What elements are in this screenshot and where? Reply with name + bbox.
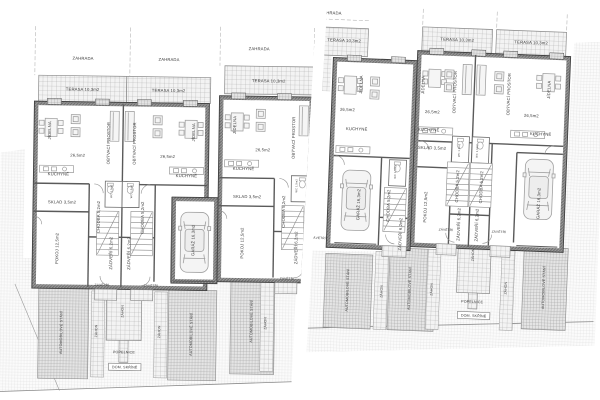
label-stani: AUTOMOBILOVÉ STÁNÍ [248, 300, 254, 343]
label-dom_skrine: DOM. SKŘÍNĚ [112, 364, 138, 369]
label-zahrada: ZAHRADA [72, 56, 93, 61]
label-garaz: GARÁŽ 16,3m2 [190, 224, 195, 256]
sofa-icon [462, 64, 472, 94]
label-zavetri: ZÁVĚTŘÍ [439, 227, 454, 233]
label-wc: WC 1,5m2 [457, 143, 462, 157]
label-zadveri: ZÁDVEŘÍ 6,2m2 [293, 231, 298, 264]
label-wc: WC 1,5m2 [294, 179, 298, 193]
label-zahon: ZÁHON [94, 324, 98, 337]
sofa-icon [476, 65, 486, 95]
label-pokoj: POKOJ 12,5m2 [239, 227, 244, 259]
right-floor-plan: ZAHRADATERASA 10,3m2TERASA 10,3m2TERASA … [293, 4, 600, 397]
label-zahon: ZÁHON [503, 281, 507, 294]
label-area_living: 26,5m2 [340, 107, 356, 113]
label-kuchyne: KUCHYNĚ [233, 166, 255, 171]
label-chodba: CHODBA 5,2m2 [281, 195, 286, 228]
label-jidelna: JÍDELNA [546, 80, 552, 99]
sofa-icon [110, 111, 119, 141]
label-wc: WC 1,5m2 [109, 184, 113, 198]
label-zahon: ZÁHON [429, 283, 433, 296]
label-area_living: 26,5m2 [255, 147, 270, 152]
label-zavetri: ZÁVĚTŘÍ [95, 282, 110, 287]
label-zahon: ZÁHON [263, 317, 267, 330]
left-floor-plan: ZAHRADAZAHRADAZAHRADATERASA 10,3m2TERASA… [11, 18, 326, 394]
kitchen-counter-icon [336, 146, 370, 154]
label-zahrada: ZAHRADA [321, 10, 342, 16]
sofa-icon [299, 106, 308, 136]
label-popelnice: POPELNICE [113, 350, 135, 354]
label-dom_skrine: DOM. SKŘÍNĚ [461, 313, 487, 319]
label-zahon: ZÁHON [120, 305, 124, 318]
label-zadveri: ZÁDVEŘÍ 6,2m2 [126, 236, 131, 269]
label-kuchyne: KUCHYNĚ [48, 171, 70, 176]
label-wc: WC 1,5m2 [129, 184, 133, 198]
toilet-icon [299, 178, 305, 188]
label-kuchyne: KUCHYNĚ [530, 131, 552, 137]
label-wc: WC 1,5m2 [393, 165, 398, 179]
label-obyvaci: OBÝVACÍ PROSTOR [132, 122, 138, 164]
label-area_living: 26,5m2 [160, 154, 175, 159]
label-chodba: CHODBA 5,2m2 [140, 201, 145, 234]
label-zahrada: ZAHRADA [158, 57, 179, 62]
label-terasa: TERASA 10,3m2 [252, 78, 286, 83]
label-obyvaci: OBÝVACÍ PROSTOR [291, 117, 297, 159]
label-wc: WC 1,5m2 [475, 144, 480, 158]
label-area_living: 26,5m2 [524, 113, 540, 119]
parking-strip [38, 288, 89, 379]
label-sklad: SKLAD 3,5m2 [48, 199, 77, 204]
label-pokoj: POKOJ 12,5m2 [54, 232, 59, 264]
label-jidelna: JÍDELNA [358, 75, 364, 94]
left-plan-svg: ZAHRADAZAHRADAZAHRADATERASA 10,3m2TERASA… [11, 18, 326, 394]
label-kuchyne: KUCHYNĚ [346, 126, 368, 132]
label-obyvaci: OBÝVACÍ PROSTOR [106, 122, 112, 164]
label-zavetri: ZÁVĚTŘÍ [144, 283, 159, 288]
label-zahrada: ZAHRADA [249, 46, 270, 51]
label-zahon: ZÁHON [157, 325, 161, 338]
label-jidelna: JÍDELNA [191, 123, 196, 141]
label-kuchyne: KUCHYNĚ [176, 173, 198, 178]
label-zavetri: ZÁVĚTŘÍ [311, 235, 326, 241]
label-zahon: ZÁHON [471, 248, 475, 261]
label-area_living: 26,5m2 [70, 153, 85, 158]
label-jidelna: JÍDELNA [47, 121, 52, 139]
label-chodba: CHODBA 5,2m2 [96, 200, 101, 233]
label-jidelna: JÍDELNA [420, 76, 426, 95]
label-zadveri: ZÁDVEŘÍ 6,2m2 [108, 236, 113, 269]
garage-door [173, 281, 215, 282]
label-zahon: ZÁHON [379, 285, 383, 298]
label-stani: AUTOMOBILOVÉ STÁNÍ [188, 313, 194, 356]
floor-plan-canvas: ZAHRADAZAHRADAZAHRADATERASA 10,3m2TERASA… [0, 0, 600, 400]
label-area_living: 26,5m2 [425, 109, 441, 115]
label-zavetri: ZÁVĚTŘÍ [280, 276, 295, 281]
label-sklad: SKLAD 3,5m2 [233, 194, 262, 199]
label-zavetri: ZÁVĚTŘÍ [492, 229, 507, 235]
label-terasa: TERASA 10,3m2 [152, 88, 186, 93]
right-plan-svg: ZAHRADATERASA 10,3m2TERASA 10,3m2TERASA … [293, 4, 600, 397]
label-stani: AUTOMOBILOVÉ STÁNÍ [58, 311, 64, 354]
label-jidelna: JÍDELNA [232, 116, 237, 134]
label-terasa: TERASA 10,3m2 [66, 87, 100, 92]
label-kuchyne: KUCHYNĚ [418, 127, 440, 133]
